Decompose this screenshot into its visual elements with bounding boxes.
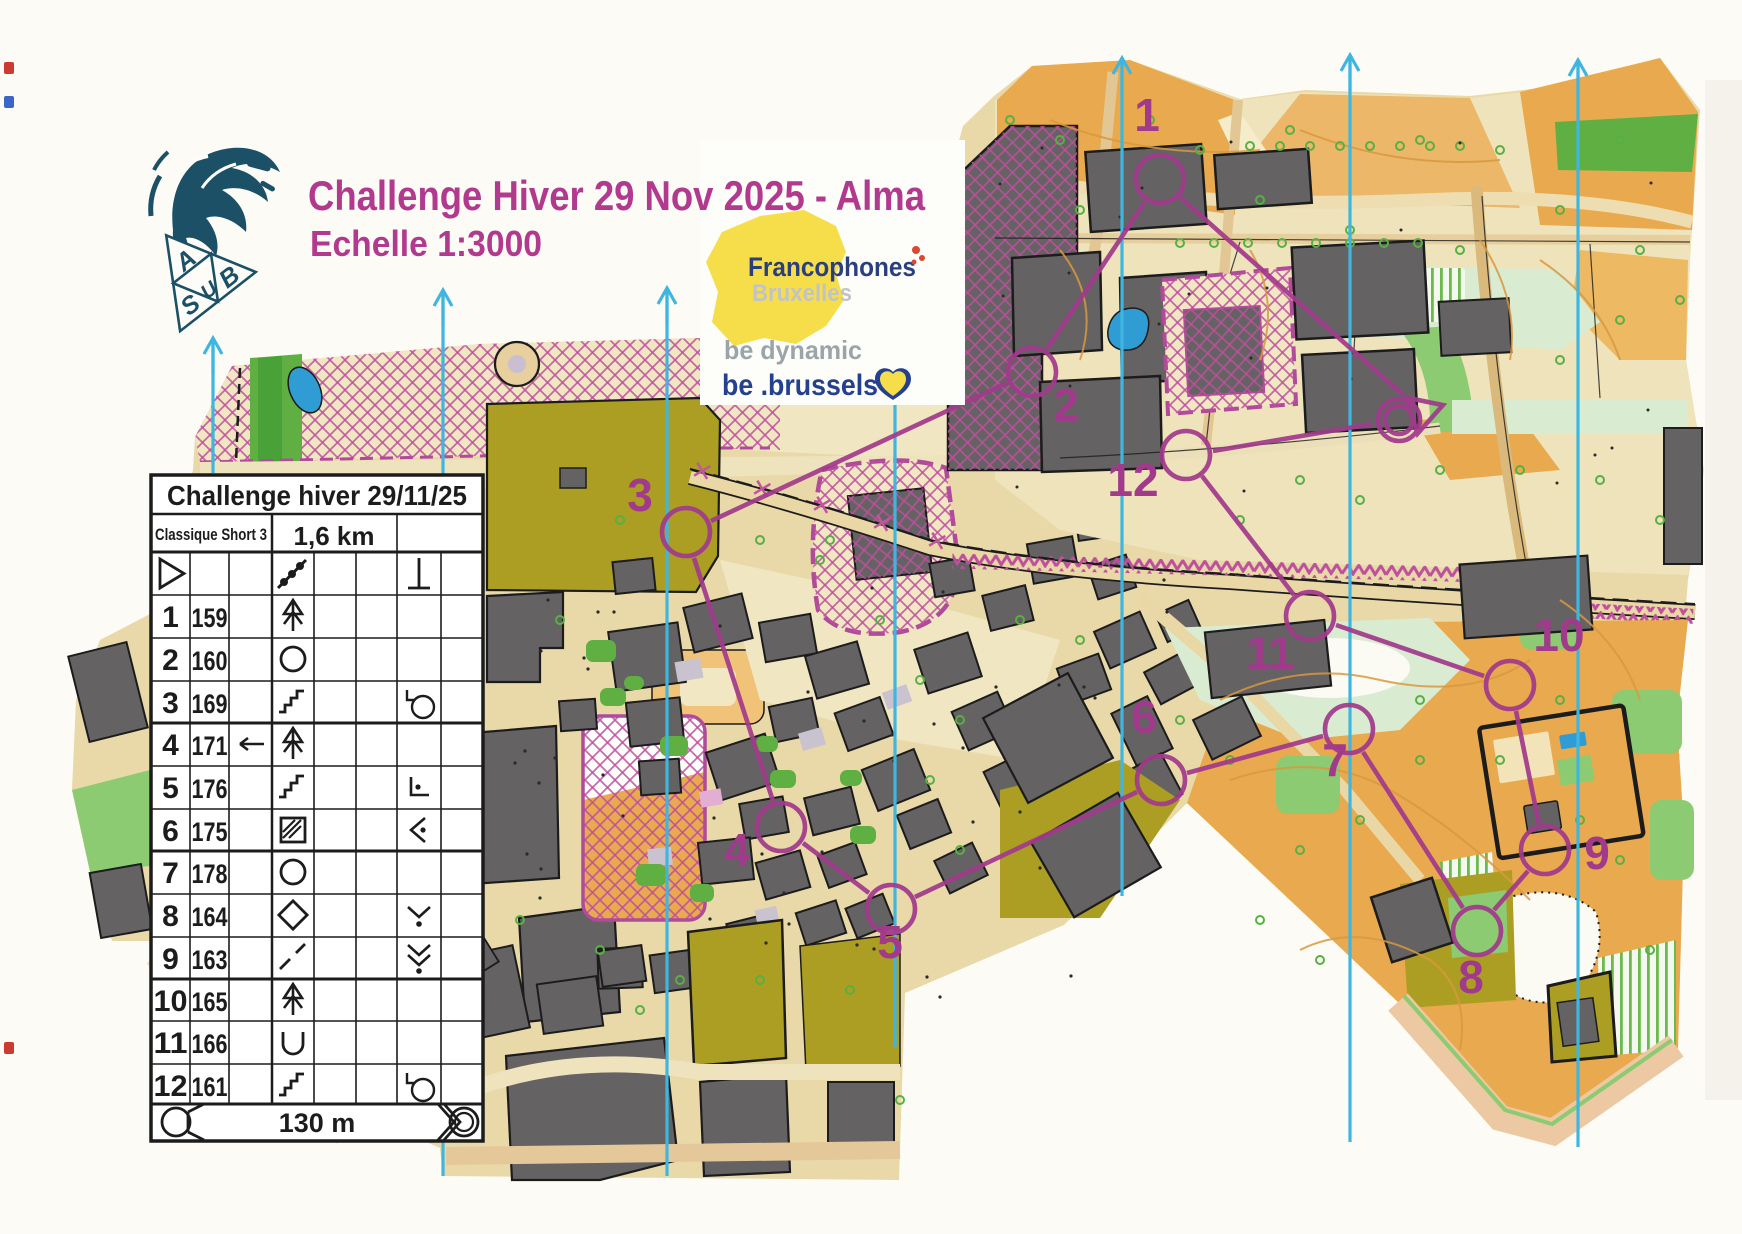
svg-text:1: 1 <box>1134 89 1160 141</box>
svg-text:1,6 km: 1,6 km <box>294 521 375 551</box>
svg-text:6: 6 <box>162 815 179 848</box>
svg-text:12: 12 <box>154 1070 188 1103</box>
svg-text:176: 176 <box>192 774 228 804</box>
svg-text:Bruxelles: Bruxelles <box>752 280 852 307</box>
svg-text:160: 160 <box>192 646 228 676</box>
svg-text:130 m: 130 m <box>279 1108 356 1138</box>
svg-text:7: 7 <box>1322 734 1348 786</box>
svg-text:163: 163 <box>192 945 228 975</box>
svg-text:8: 8 <box>162 900 179 933</box>
svg-text:159: 159 <box>192 603 228 633</box>
svg-text:3: 3 <box>627 469 653 521</box>
svg-text:11: 11 <box>1246 627 1295 679</box>
svg-text:7: 7 <box>162 857 179 890</box>
svg-text:5: 5 <box>162 772 179 805</box>
svg-text:6: 6 <box>1131 691 1157 743</box>
svg-text:11: 11 <box>154 1027 188 1060</box>
svg-text:12: 12 <box>1107 454 1158 506</box>
svg-text:165: 165 <box>192 987 228 1017</box>
svg-text:Echelle 1:3000: Echelle 1:3000 <box>310 223 542 264</box>
svg-text:4: 4 <box>162 729 179 762</box>
svg-text:175: 175 <box>192 817 228 847</box>
svg-text:9: 9 <box>1584 827 1610 879</box>
svg-text:5: 5 <box>877 916 903 968</box>
svg-text:Classique Short 3: Classique Short 3 <box>155 525 267 544</box>
svg-text:Francophones: Francophones <box>748 252 916 282</box>
svg-text:be .brussels: be .brussels <box>722 369 878 402</box>
svg-text:9: 9 <box>162 943 179 976</box>
svg-text:166: 166 <box>192 1029 228 1059</box>
svg-text:161: 161 <box>192 1072 228 1102</box>
svg-text:Challenge hiver 29/11/25: Challenge hiver 29/11/25 <box>167 480 467 511</box>
svg-text:171: 171 <box>192 731 228 761</box>
svg-text:8: 8 <box>1458 951 1484 1003</box>
svg-text:3: 3 <box>162 687 179 720</box>
svg-text:178: 178 <box>192 859 228 889</box>
svg-text:4: 4 <box>724 824 750 876</box>
svg-text:be dynamic: be dynamic <box>724 335 862 365</box>
svg-text:1: 1 <box>162 601 179 634</box>
svg-text:164: 164 <box>192 902 228 932</box>
svg-text:169: 169 <box>192 689 228 719</box>
svg-text:10: 10 <box>1533 609 1584 661</box>
svg-text:2: 2 <box>1053 379 1079 431</box>
svg-text:10: 10 <box>154 985 188 1018</box>
svg-text:Challenge Hiver 29 Nov 2025 -: Challenge Hiver 29 Nov 2025 - Alma <box>308 172 926 219</box>
svg-text:2: 2 <box>162 644 179 677</box>
